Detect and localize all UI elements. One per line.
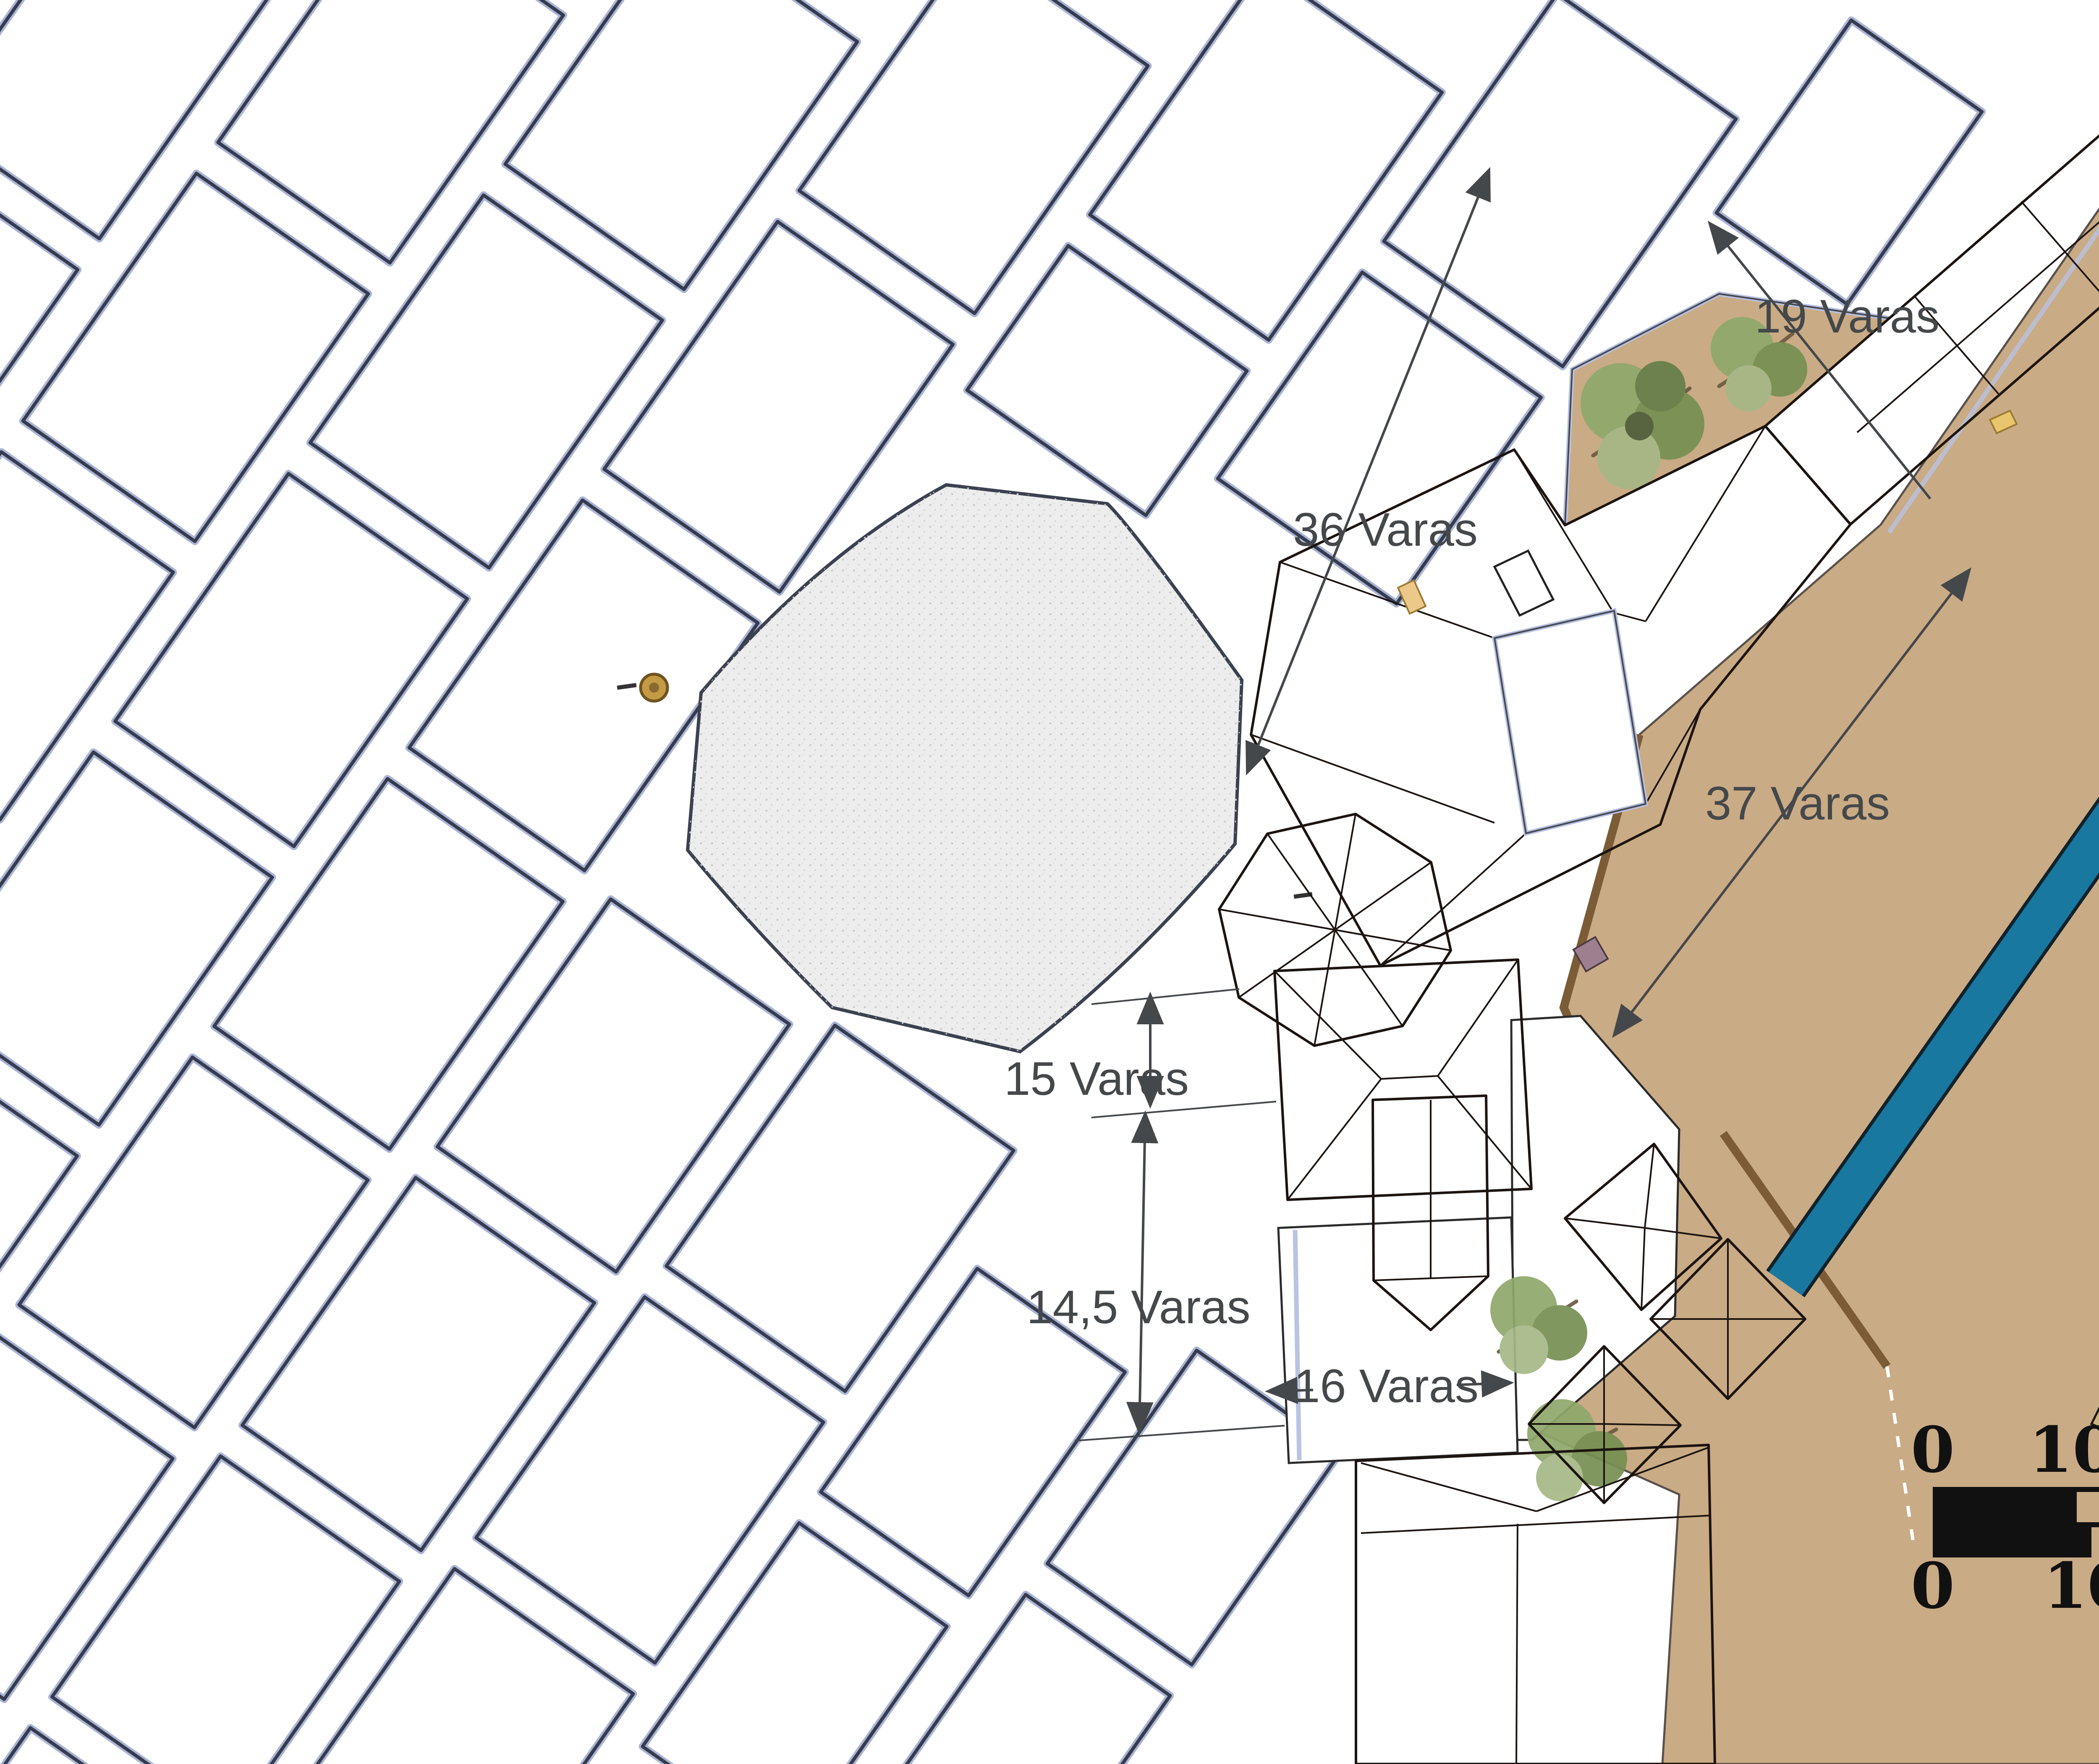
- dim-label-19: 19 Varas: [1755, 290, 1939, 343]
- site-plan-page: 19 Varas 36 Varas 37 Varas 15 Varas 14,5…: [0, 0, 2099, 1764]
- scale-bar-meters: [1933, 1487, 2099, 1522]
- scale-segment: [2077, 1492, 2099, 1522]
- scale-m-10: 10: [2029, 1413, 2099, 1487]
- dim-label-36: 36 Varas: [1293, 503, 1478, 556]
- dim-label-16: 16 Varas: [1294, 1360, 1479, 1412]
- scale-v-10: 10: [2044, 1549, 2099, 1623]
- plaza-well-center: [649, 683, 659, 693]
- map-canvas: 19 Varas 36 Varas 37 Varas 15 Varas 14,5…: [0, 0, 2099, 1764]
- dim-label-37: 37 Varas: [1705, 777, 1890, 830]
- courtyard-south-white: [1278, 1217, 1518, 1463]
- scale-m-0: 0: [1911, 1413, 1955, 1487]
- dim-label-14-5: 14,5 Varas: [1026, 1281, 1250, 1333]
- dim-label-15: 15 Varas: [1004, 1052, 1189, 1105]
- scale-v-0: 0: [1911, 1549, 1955, 1623]
